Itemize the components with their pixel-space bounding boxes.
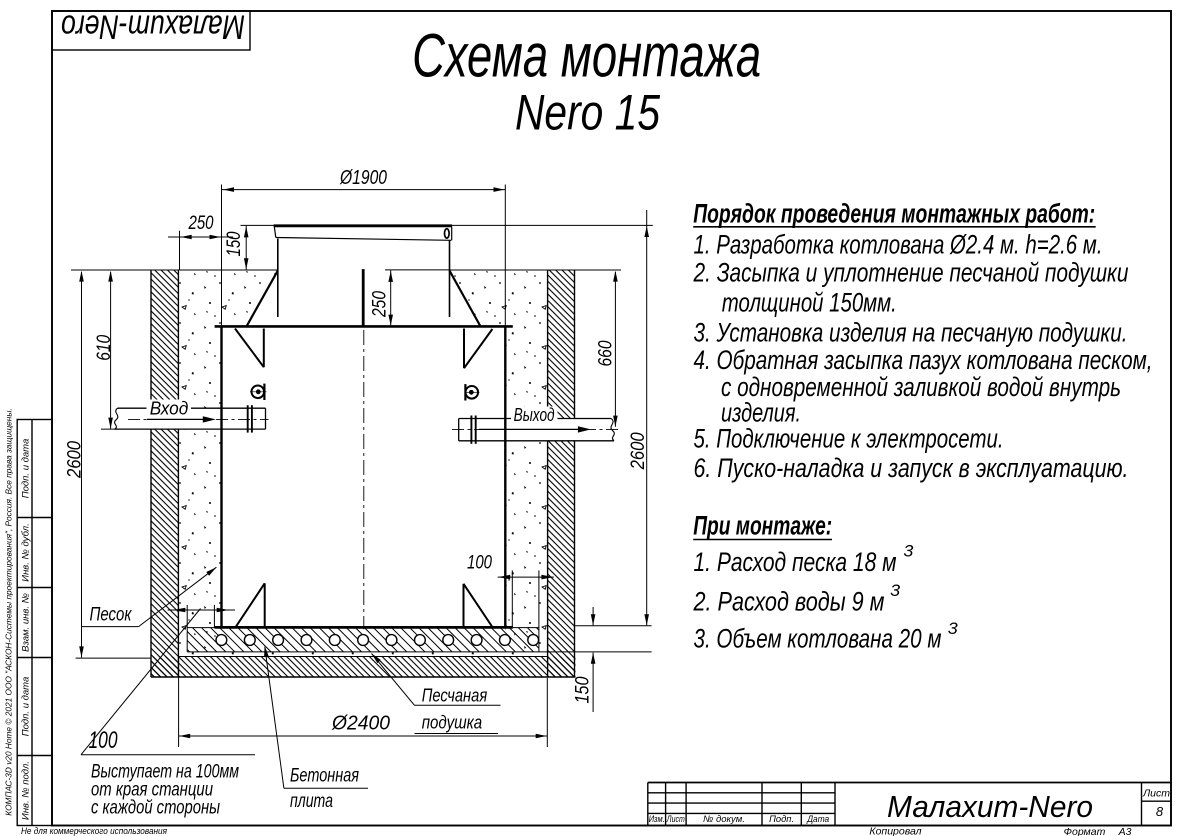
svg-text:100: 100 bbox=[467, 553, 492, 574]
svg-text:Песок: Песок bbox=[90, 605, 133, 626]
svg-text:подушка: подушка bbox=[422, 712, 483, 733]
svg-text:3: 3 bbox=[903, 542, 914, 561]
svg-text:плита: плита bbox=[290, 791, 333, 812]
svg-text:6. Пуско-наладка и запуск в эк: 6. Пуско-наладка и запуск в эксплуатацию… bbox=[694, 453, 1129, 483]
svg-text:3. Установка изделия на песчан: 3. Установка изделия на песчаную подушки… bbox=[694, 318, 1128, 348]
svg-text:Дата: Дата bbox=[806, 814, 829, 825]
svg-text:Подп. и дата: Подп. и дата bbox=[21, 677, 32, 736]
svg-text:Взам. инв. №: Взам. инв. № bbox=[21, 593, 32, 652]
svg-text:Подп.: Подп. bbox=[769, 814, 794, 825]
svg-text:Малахит-Nero: Малахит-Nero bbox=[887, 789, 1093, 824]
svg-text:2600: 2600 bbox=[628, 432, 649, 470]
svg-text:1. Разработка котлована Ø2.4 м: 1. Разработка котлована Ø2.4 м. h=2.6 м. bbox=[694, 230, 1103, 260]
svg-text:А3: А3 bbox=[1118, 826, 1132, 836]
svg-text:Выход: Выход bbox=[514, 405, 555, 425]
svg-text:2. Засыпка и уплотнение песчан: 2. Засыпка и уплотнение песчаной подушки bbox=[693, 258, 1129, 288]
svg-text:Не для коммерческого использов: Не для коммерческого использования bbox=[21, 826, 167, 836]
svg-text:Ø2400: Ø2400 bbox=[331, 713, 390, 735]
svg-text:Лист: Лист bbox=[1142, 788, 1170, 800]
svg-text:Схема монтажа: Схема монтажа bbox=[412, 21, 761, 89]
svg-text:Ø1900: Ø1900 bbox=[339, 167, 387, 189]
svg-text:8: 8 bbox=[1156, 804, 1164, 819]
svg-text:1. Расход песка 18 м: 1. Расход песка 18 м bbox=[694, 547, 897, 577]
svg-text:5. Подключение к электросети.: 5. Подключение к электросети. bbox=[694, 424, 1004, 454]
svg-text:150: 150 bbox=[573, 676, 594, 703]
svg-text:с каждой стороны: с каждой стороны bbox=[91, 798, 220, 819]
svg-text:2. Расход воды 9 м: 2. Расход воды 9 м bbox=[693, 587, 885, 617]
svg-text:Вход: Вход bbox=[150, 399, 189, 419]
svg-text:Инв. № дубл.: Инв. № дубл. bbox=[21, 523, 32, 581]
svg-text:толщиной 150мм.: толщиной 150мм. bbox=[722, 287, 897, 317]
svg-text:Копировал: Копировал bbox=[869, 826, 921, 836]
svg-text:250: 250 bbox=[370, 291, 391, 318]
svg-text:3: 3 bbox=[890, 581, 901, 600]
svg-text:2600: 2600 bbox=[65, 441, 86, 479]
svg-text:4. Обратная засыпка пазух котл: 4. Обратная засыпка пазух котлована песк… bbox=[694, 345, 1153, 375]
svg-text:660: 660 bbox=[595, 340, 616, 366]
svg-text:При монтаже:: При монтаже: bbox=[693, 511, 832, 541]
svg-text:Инв. № подл.: Инв. № подл. bbox=[21, 761, 32, 820]
svg-text:150: 150 bbox=[224, 231, 245, 256]
svg-text:Песчаная: Песчаная bbox=[422, 685, 488, 706]
svg-text:Изм.: Изм. bbox=[649, 814, 665, 825]
svg-text:КОМПАС-3D v20 Home © 2021 ООО: КОМПАС-3D v20 Home © 2021 ООО "АСКОН-Сис… bbox=[4, 408, 14, 815]
svg-text:Nero 15: Nero 15 bbox=[515, 85, 660, 141]
svg-text:Малахит-Nero: Малахит-Nero bbox=[61, 8, 245, 46]
svg-text:Формат: Формат bbox=[1064, 826, 1106, 836]
svg-text:Бетонная: Бетонная bbox=[290, 766, 359, 787]
svg-text:3: 3 bbox=[948, 619, 959, 638]
svg-text:610: 610 bbox=[94, 334, 115, 360]
svg-text:№ докум.: № докум. bbox=[703, 814, 745, 825]
svg-text:3. Объем котлована 20 м: 3. Объем котлована 20 м bbox=[694, 624, 942, 654]
svg-text:Лист: Лист bbox=[666, 814, 685, 825]
svg-text:Порядок проведения монтажных р: Порядок проведения монтажных работ: bbox=[693, 199, 1095, 229]
svg-text:Подп. и дата: Подп. и дата bbox=[21, 439, 32, 498]
svg-text:250: 250 bbox=[188, 213, 214, 234]
